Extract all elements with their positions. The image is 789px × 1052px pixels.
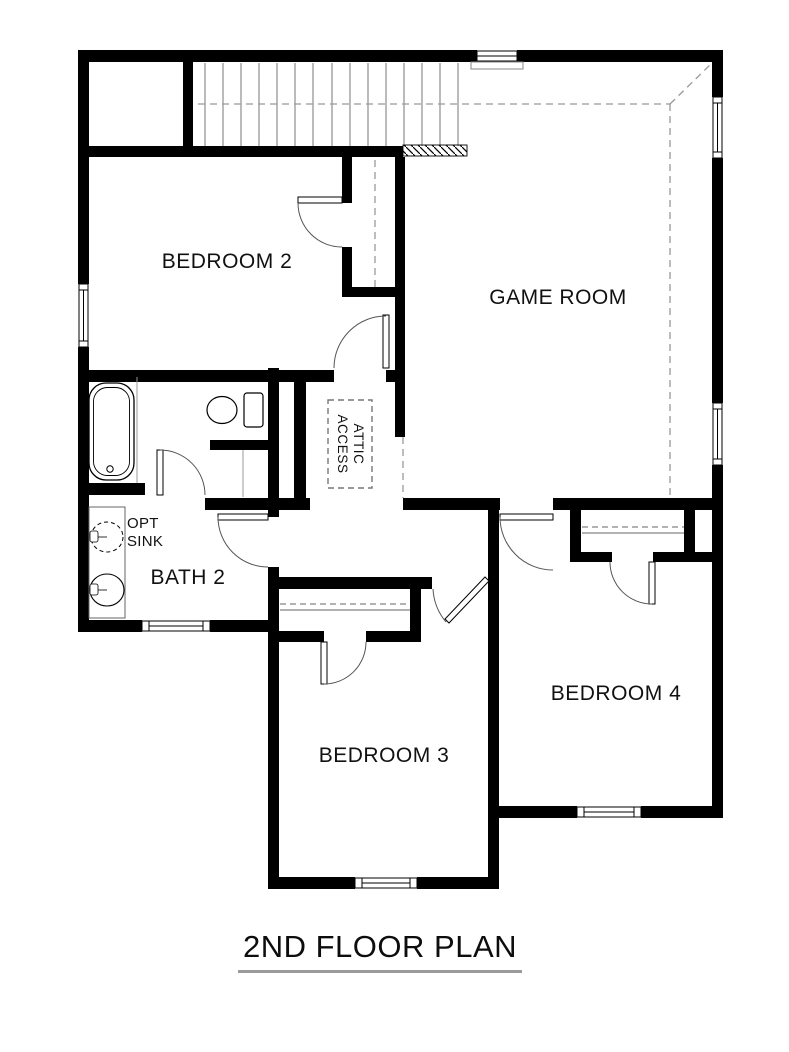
opt-sink-label: OPT SINK	[127, 515, 163, 550]
plan-title: 2ND FLOOR PLAN	[238, 929, 522, 973]
opt-sink-label-line2: SINK	[127, 533, 163, 551]
door-bedroom3-entry	[433, 577, 489, 623]
door-tub-room	[157, 450, 205, 495]
stair-break-hatch	[403, 145, 467, 156]
optional-sink	[90, 522, 123, 552]
window-bedroom4-bottom	[577, 807, 641, 817]
window-bedroom2-left	[79, 284, 88, 347]
attic-access-label: ATTIC ACCESS	[334, 414, 366, 473]
door-bath2	[218, 514, 268, 567]
floor-plan: BEDROOM 2 GAME ROOM BATH 2 BEDROOM 3 BED…	[0, 0, 789, 1052]
attic-access-label-line2: ACCESS	[334, 414, 350, 473]
window-gameroom-right-upper	[713, 97, 722, 158]
door-bedroom4-closet	[610, 562, 655, 604]
opt-sink-label-line1: OPT	[127, 515, 163, 533]
vanity-sink	[90, 574, 124, 606]
attic-access-label-line1: ATTIC	[350, 414, 366, 473]
floor-plan-drawing	[0, 0, 789, 1052]
closet-rod-bedroom4	[582, 527, 684, 533]
window-gameroom-right-lower	[713, 403, 722, 465]
closet-rod-bedroom3	[280, 604, 410, 610]
room-label-bedroom2: BEDROOM 2	[162, 250, 293, 274]
window-bedroom3-bottom	[355, 878, 417, 888]
toilet	[207, 393, 263, 427]
window-bath2-bottom	[142, 621, 210, 631]
room-label-bath2: BATH 2	[151, 566, 226, 590]
bathtub	[89, 377, 137, 483]
door-bedroom3-closet	[321, 642, 366, 684]
room-label-bedroom3: BEDROOM 3	[319, 744, 450, 768]
window-gameroom-top	[471, 51, 523, 69]
room-label-bedroom4: BEDROOM 4	[551, 682, 682, 706]
door-bedroom4-entry	[500, 514, 553, 570]
door-bedroom2	[298, 197, 342, 247]
door-hall-landing	[334, 315, 389, 368]
room-label-game-room: GAME ROOM	[489, 286, 627, 310]
